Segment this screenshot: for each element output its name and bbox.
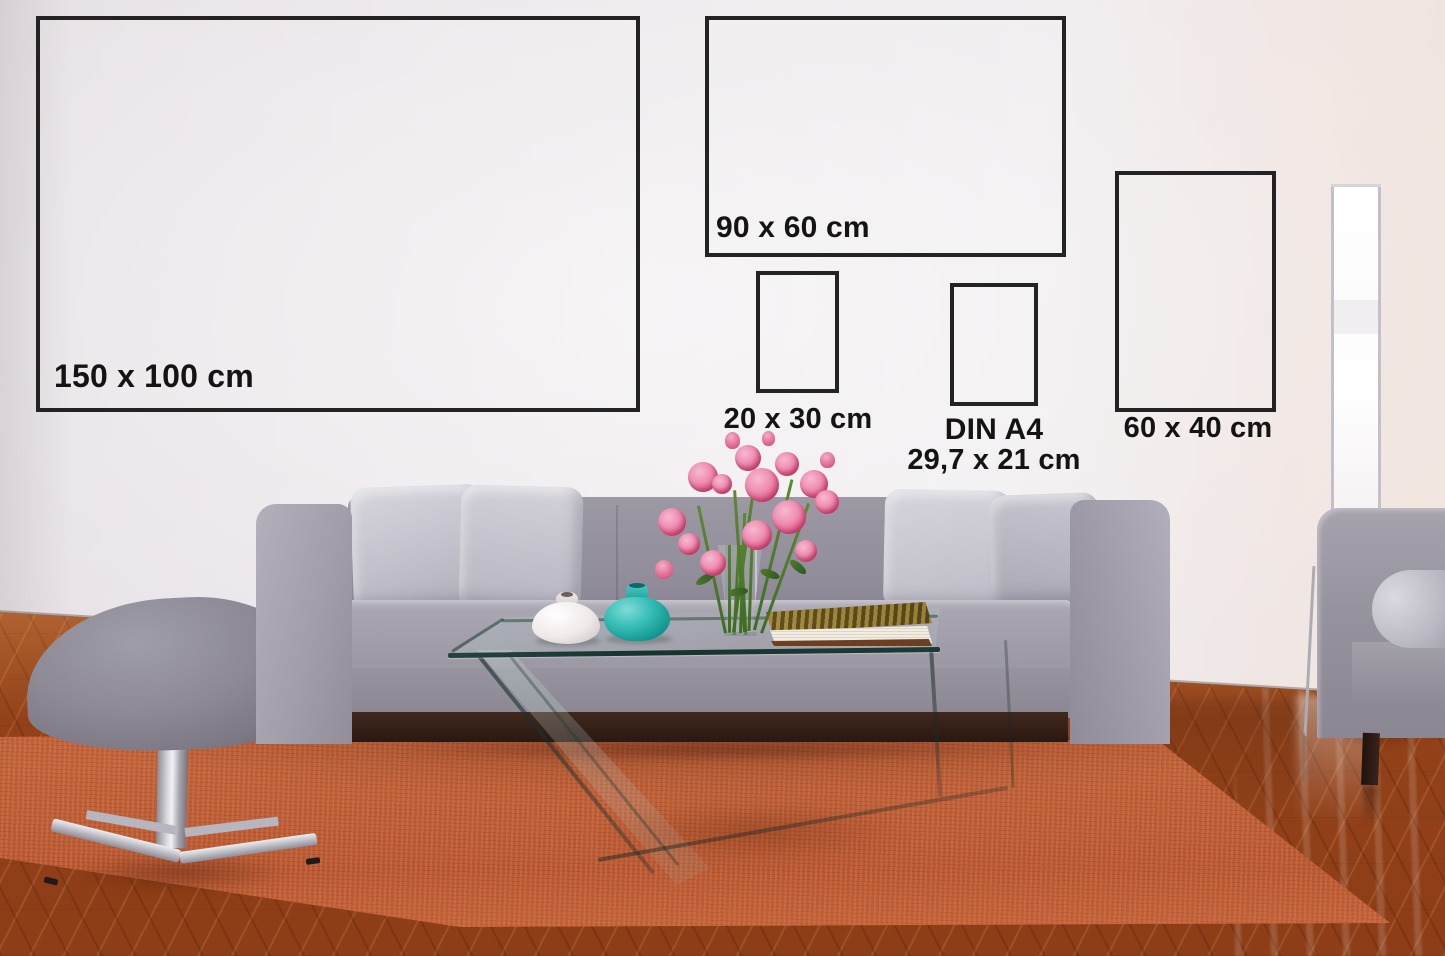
bolster-cushion bbox=[1372, 570, 1445, 648]
sofa-arm-right bbox=[1070, 500, 1170, 744]
size-label-60x40: 60 x 40 cm bbox=[1103, 413, 1293, 443]
floor-lamp-band bbox=[1334, 300, 1378, 334]
white-vase bbox=[532, 602, 600, 644]
flower-bouquet bbox=[640, 425, 840, 655]
flower bbox=[700, 550, 726, 576]
flower-bud bbox=[762, 431, 775, 446]
flower bbox=[815, 490, 839, 514]
sofa-arm-left bbox=[256, 504, 352, 744]
flower bbox=[735, 445, 761, 471]
frame-150x100 bbox=[36, 16, 640, 412]
size-label-150x100: 150 x 100 cm bbox=[54, 360, 254, 393]
flower bbox=[742, 520, 772, 550]
flower bbox=[712, 474, 732, 494]
sofa-front bbox=[338, 668, 1076, 718]
leaf bbox=[759, 567, 781, 581]
sofa-base bbox=[346, 712, 1068, 742]
floor-lamp-cap bbox=[1331, 184, 1381, 187]
flower bbox=[775, 452, 799, 476]
flower bbox=[772, 500, 806, 534]
white-vase-opening bbox=[561, 592, 573, 597]
living-room-poster-size-guide: 150 x 100 cm 90 x 60 cm 20 x 30 cm DIN A… bbox=[0, 0, 1445, 956]
side-sofa-leg-reflection bbox=[1363, 786, 1378, 826]
frame-20x30 bbox=[756, 271, 839, 393]
din-a4-title: DIN A4 bbox=[880, 414, 1108, 445]
frame-60x40 bbox=[1115, 171, 1276, 412]
sofa-seam bbox=[616, 505, 618, 613]
side-sofa-seat bbox=[1352, 642, 1445, 698]
flower bbox=[745, 468, 779, 502]
floor-lamp bbox=[1333, 187, 1379, 509]
flower-bud bbox=[655, 560, 673, 579]
floor-lamp-pole-left bbox=[1331, 186, 1334, 510]
floor-lamp-pole-right bbox=[1378, 186, 1381, 510]
frame-din-a4 bbox=[950, 283, 1038, 406]
size-label-din-a4: DIN A4 29,7 x 21 cm bbox=[880, 414, 1108, 475]
leaf bbox=[728, 587, 749, 598]
floor-lamp-leg-reflection bbox=[1302, 733, 1305, 781]
flower bbox=[678, 533, 700, 555]
din-a4-dimensions: 29,7 x 21 cm bbox=[880, 445, 1108, 475]
size-label-90x60: 90 x 60 cm bbox=[716, 212, 870, 243]
side-sofa-leg bbox=[1361, 733, 1380, 786]
flower bbox=[795, 540, 817, 562]
flower bbox=[658, 508, 686, 536]
flower-bud bbox=[820, 452, 835, 468]
flower-bud bbox=[725, 432, 740, 449]
